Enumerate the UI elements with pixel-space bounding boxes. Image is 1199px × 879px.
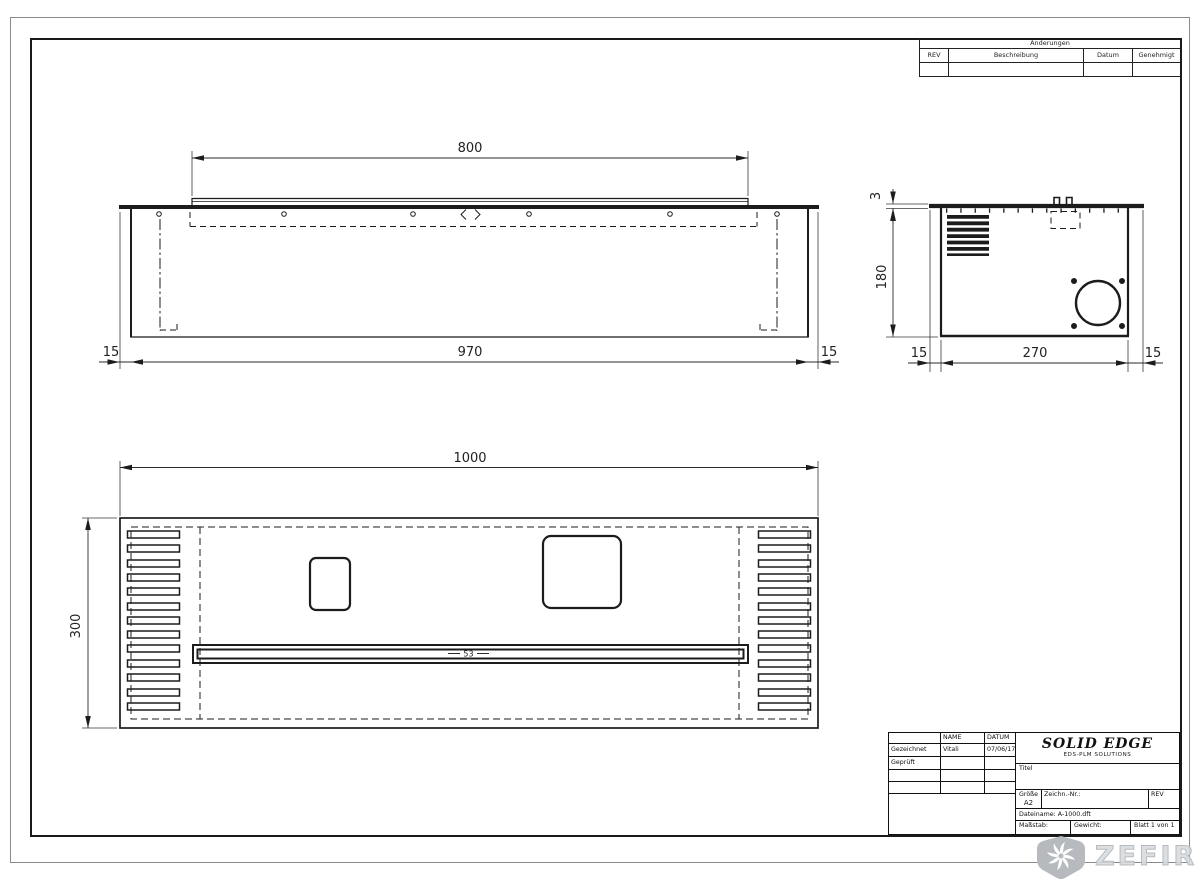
title-block-notes-area [889, 794, 1015, 834]
revision-col-rev: REV [920, 49, 949, 62]
drawn-row: Gezeichnet Vitali 07/06/17 [889, 744, 1015, 757]
watermark-text: ZEFIRE [1095, 835, 1199, 879]
size-value: A2 [1016, 799, 1041, 807]
dim-side-right-offset: 15 [1145, 346, 1162, 361]
revision-empty-cell [1084, 63, 1133, 76]
front-mounting-holes [157, 212, 780, 217]
brand-subtitle: EDS-PLM SOLUTIONS [1016, 752, 1179, 758]
empty-cell [941, 770, 985, 781]
revision-col-description: Beschreibung [949, 49, 1084, 62]
empty-cell [889, 770, 941, 781]
front-view: 800 970 15 15 [99, 141, 839, 369]
top-hidden-chamber-lines [200, 527, 739, 719]
title-block-main: SOLID EDGE EDS-PLM SOLUTIONS Titel Größe… [1016, 733, 1179, 834]
top-extension-lines [82, 461, 818, 728]
top-hidden-body [131, 527, 808, 719]
dim-top-length: 1000 [453, 451, 486, 466]
dim-front-flange-width: 800 [458, 141, 483, 156]
title-field: Titel [1016, 764, 1179, 790]
revision-col-date: Datum [1084, 49, 1133, 62]
weight-cell: Gewicht: [1071, 821, 1131, 834]
checked-date [985, 757, 1015, 769]
revision-table-empty-row [920, 63, 1180, 76]
top-outline [120, 518, 818, 728]
dim-side-plate-thickness: 3 [869, 192, 884, 200]
empty-cell [941, 782, 985, 793]
top-view: 53 1000 300 [69, 451, 818, 728]
rev-cell: REV [1149, 790, 1179, 808]
revision-table-title: Änderungen [920, 38, 1180, 49]
revision-empty-cell [949, 63, 1084, 76]
dim-side-left-offset: 15 [911, 346, 928, 361]
fan-hole [1076, 281, 1120, 325]
side-body-sides [941, 208, 1128, 336]
revision-table-header: REV Beschreibung Datum Genehmigt [920, 49, 1180, 63]
empty-cell [985, 770, 1015, 781]
empty-signature-row [889, 782, 1015, 794]
dim-front-right-offset: 15 [821, 345, 838, 360]
sheet-number-cell: Blatt 1 von 1 [1131, 821, 1179, 834]
signature-header-row: NAME DATUM [889, 733, 1015, 744]
signature-header-name: NAME [941, 733, 985, 743]
checked-name [941, 757, 985, 769]
empty-cell [889, 782, 941, 793]
front-hidden-duct-lines [160, 219, 777, 331]
dim-front-left-offset: 15 [103, 345, 120, 360]
front-hidden-duct-bottom [160, 323, 777, 330]
drawing-number-label: Zeichn.-Nr.: [1044, 791, 1081, 798]
vent-grille-right [759, 531, 811, 710]
signature-header-date: DATUM [985, 733, 1015, 743]
terminal-prongs [1054, 198, 1072, 205]
rev-label: REV [1151, 791, 1164, 798]
size-label: Größe [1016, 791, 1041, 799]
side-view: 3 180 15 270 15 [869, 189, 1163, 372]
filename-cell: Dateiname: A-1000.dft [1016, 809, 1179, 821]
drawn-date: 07/06/17 [985, 744, 1015, 756]
large-cutout [543, 536, 621, 608]
revision-table: Änderungen REV Beschreibung Datum Genehm… [919, 38, 1180, 77]
drawing-number-cell: Zeichn.-Nr.: [1042, 790, 1149, 808]
drawn-name: Vitali [941, 744, 985, 756]
title-field-label: Titel [1019, 765, 1033, 772]
title-block-signatures: NAME DATUM Gezeichnet Vitali 07/06/17 Ge… [889, 733, 1016, 834]
signature-header-blank [889, 733, 941, 743]
dim-top-slot: 53 [463, 650, 473, 659]
small-cutout [310, 558, 350, 610]
dim-side-depth: 270 [1023, 346, 1048, 361]
dim-top-depth: 300 [69, 614, 84, 639]
fan-screw-holes [1071, 278, 1125, 329]
scale-weight-sheet-row: Maßstab: Gewicht: Blatt 1 von 1 [1016, 821, 1179, 834]
zefire-shield-icon [1034, 835, 1088, 879]
center-mark-icon [461, 210, 480, 220]
empty-cell [985, 782, 1015, 793]
brand-logo-text: SOLID EDGE [1016, 737, 1179, 751]
brand-box: SOLID EDGE EDS-PLM SOLUTIONS [1016, 733, 1179, 764]
title-block: NAME DATUM Gezeichnet Vitali 07/06/17 Ge… [888, 732, 1180, 835]
revision-empty-cell [1133, 63, 1180, 76]
front-extension-lines [120, 151, 818, 369]
checked-label: Geprüft [889, 757, 941, 769]
dim-front-body-width: 970 [458, 345, 483, 360]
revision-empty-cell [920, 63, 949, 76]
dim-side-height: 180 [875, 265, 890, 290]
revision-col-approved: Genehmigt [1133, 49, 1180, 62]
drawn-label: Gezeichnet [889, 744, 941, 756]
terminal-hidden-box [1051, 212, 1080, 229]
empty-signature-row [889, 770, 1015, 782]
size-number-rev-row: Größe A2 Zeichn.-Nr.: REV [1016, 790, 1179, 809]
front-body-sides [131, 209, 808, 338]
size-cell: Größe A2 [1016, 790, 1042, 808]
scale-cell: Maßstab: [1016, 821, 1071, 834]
zefire-watermark: ZEFIRE [1034, 835, 1199, 879]
vent-grille-left [128, 531, 180, 710]
checked-row: Geprüft [889, 757, 1015, 770]
